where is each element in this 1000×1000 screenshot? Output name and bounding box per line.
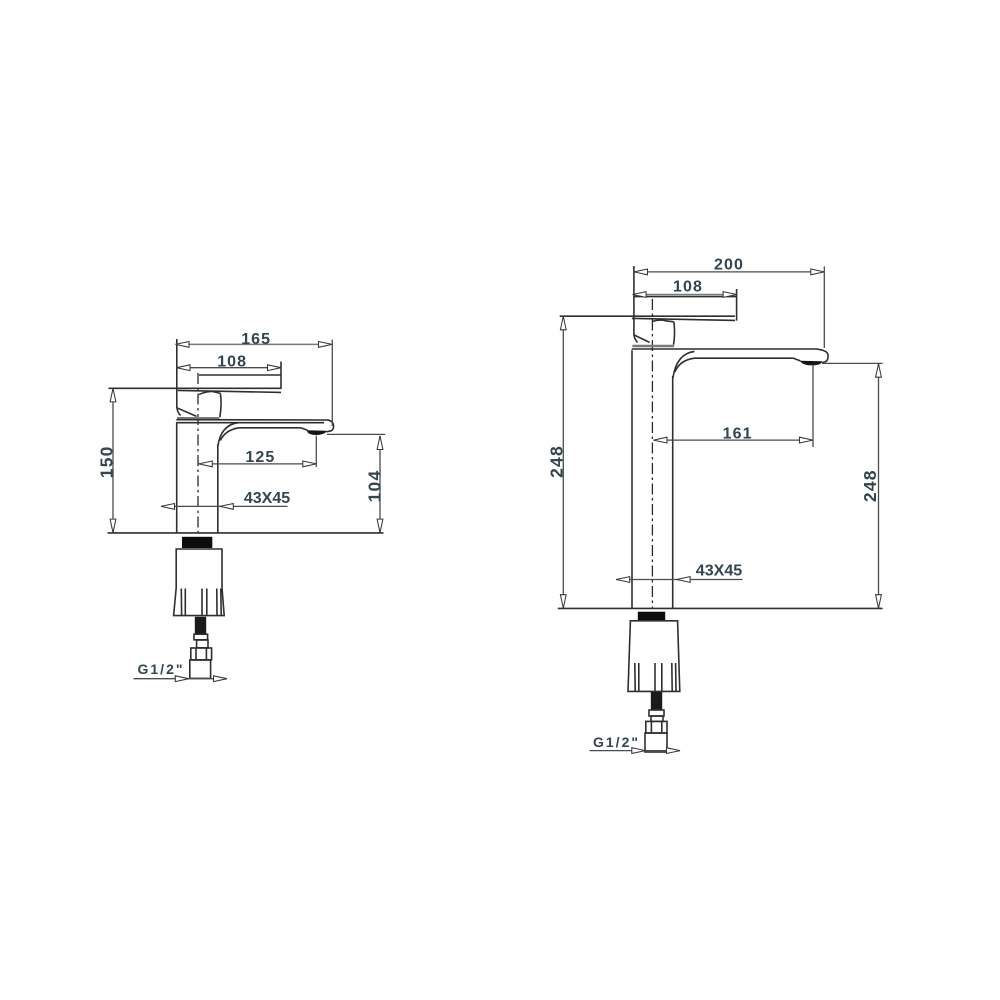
svg-text:165: 165 (241, 331, 271, 348)
svg-text:125: 125 (245, 449, 275, 466)
svg-text:108: 108 (217, 354, 247, 371)
svg-text:161: 161 (723, 426, 753, 443)
svg-text:G1/2": G1/2" (138, 661, 185, 677)
svg-text:200: 200 (714, 256, 744, 273)
svg-text:108: 108 (673, 278, 703, 295)
svg-text:43X45: 43X45 (244, 490, 290, 507)
svg-text:248: 248 (547, 445, 567, 478)
svg-text:43X45: 43X45 (696, 562, 743, 579)
svg-text:150: 150 (96, 445, 116, 478)
svg-text:104: 104 (365, 470, 385, 503)
svg-text:G1/2": G1/2" (593, 734, 640, 750)
svg-text:248: 248 (860, 469, 880, 502)
